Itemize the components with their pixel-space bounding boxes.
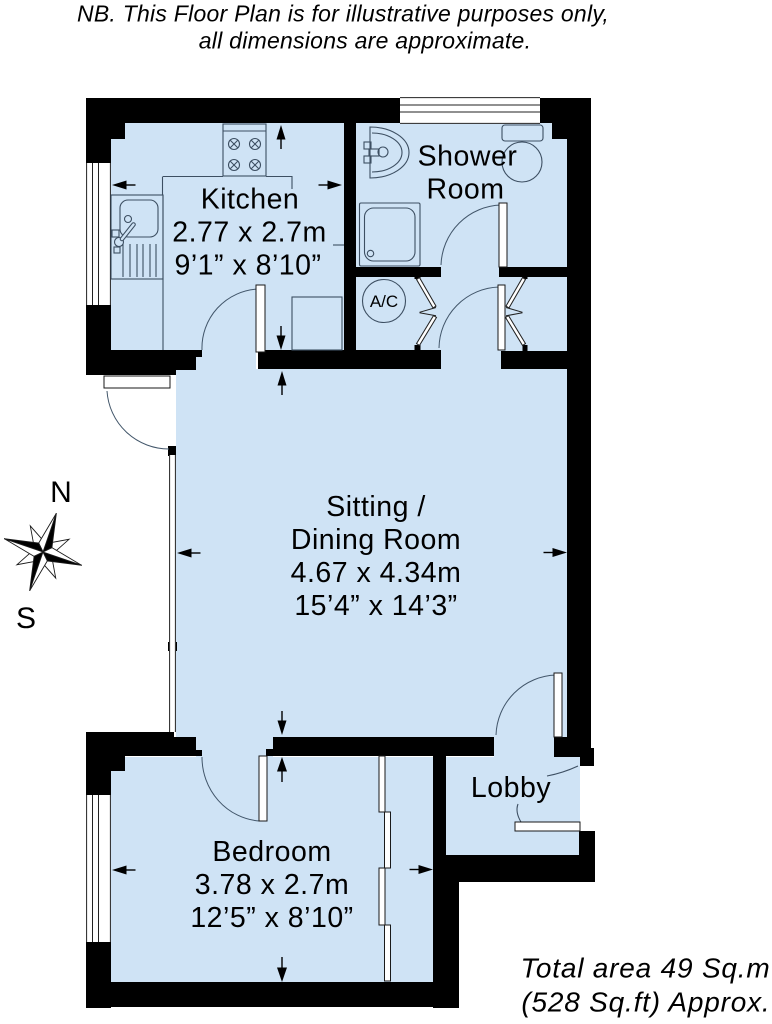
svg-text:4.67 x 4.34m: 4.67 x 4.34m bbox=[291, 557, 462, 589]
svg-text:Dining Room: Dining Room bbox=[291, 524, 461, 556]
svg-text:3.78 x 2.7m: 3.78 x 2.7m bbox=[195, 869, 349, 901]
svg-text:(528 Sq.ft) Approx.: (528 Sq.ft) Approx. bbox=[521, 987, 770, 1018]
svg-text:Total area 49 Sq.m: Total area 49 Sq.m bbox=[521, 953, 771, 984]
svg-text:A/C: A/C bbox=[370, 292, 398, 311]
svg-text:Shower: Shower bbox=[418, 141, 518, 173]
svg-text:12’5” x 8’10”: 12’5” x 8’10” bbox=[190, 902, 353, 934]
svg-text:15’4” x 14’3”: 15’4” x 14’3” bbox=[294, 590, 457, 622]
svg-text:S: S bbox=[16, 602, 36, 635]
svg-text:Kitchen: Kitchen bbox=[201, 184, 300, 216]
svg-text:Bedroom: Bedroom bbox=[212, 836, 331, 868]
svg-text:Lobby: Lobby bbox=[471, 772, 551, 804]
svg-text:all dimensions are approximate: all dimensions are approximate. bbox=[199, 28, 531, 54]
svg-text:2.77 x 2.7m: 2.77 x 2.7m bbox=[172, 217, 326, 249]
svg-text:Room: Room bbox=[426, 174, 504, 206]
svg-text:NB. This Floor Plan is for ill: NB. This Floor Plan is for illustrative … bbox=[77, 1, 609, 27]
svg-text:Sitting /: Sitting / bbox=[326, 491, 426, 523]
svg-text:N: N bbox=[50, 476, 72, 509]
svg-text:9’1” x 8’10”: 9’1” x 8’10” bbox=[175, 250, 322, 282]
